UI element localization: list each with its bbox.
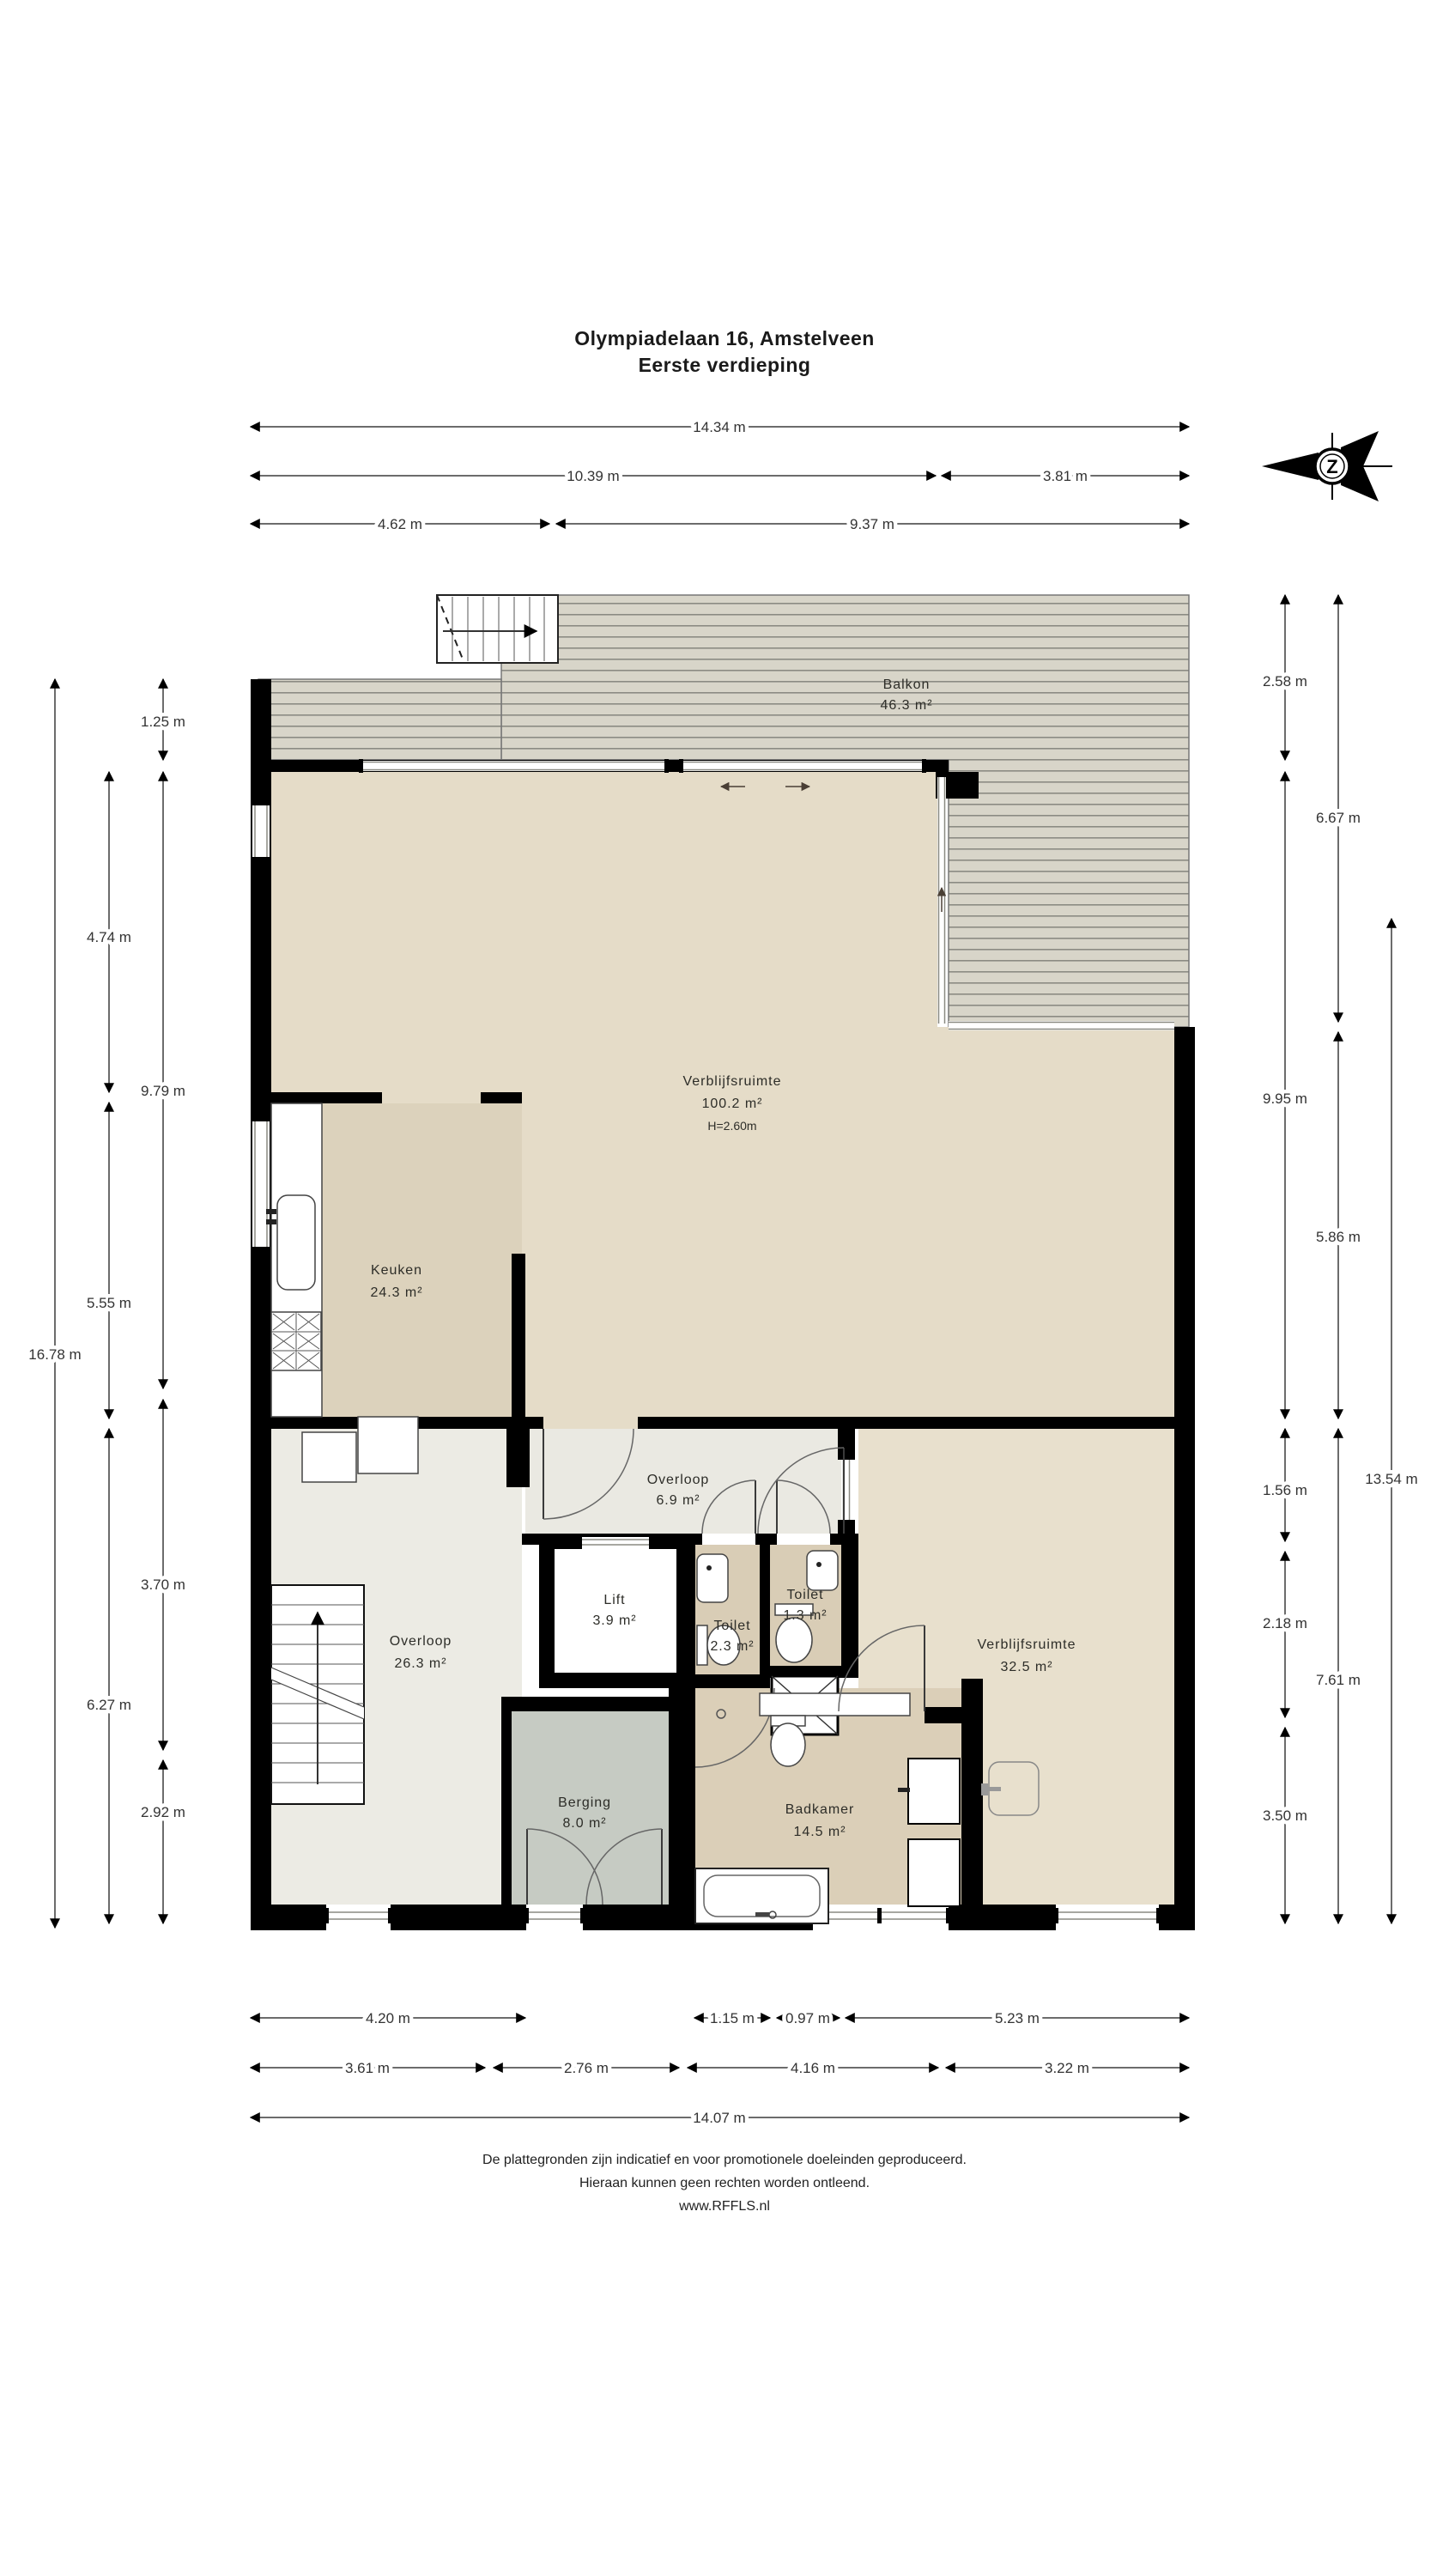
faucet-dot-icon xyxy=(706,1565,712,1571)
dim-label: 9.79 m xyxy=(141,1083,185,1099)
dim-bot-r1-1: 4.20 m xyxy=(251,2010,525,2026)
cabinet xyxy=(358,1417,418,1473)
kitchen-faucet-icon xyxy=(266,1209,276,1214)
dim-label: 5.55 m xyxy=(87,1295,131,1311)
closet-handle-icon xyxy=(898,1788,910,1792)
dim-label: 3.81 m xyxy=(1043,468,1088,484)
room-area: 6.9 m² xyxy=(656,1493,700,1508)
dim-right-mid-2: 5.86 m xyxy=(1316,1032,1361,1419)
room-area: 8.0 m² xyxy=(562,1816,606,1831)
dim-bot-r1-3: 0.97 m xyxy=(777,2010,840,2026)
disclaimer-line-1: De plattegronden zijn indicatief en voor… xyxy=(482,2153,967,2167)
dim-bot-r2-3: 4.16 m xyxy=(688,2060,938,2076)
disclaimer-line-2: Hieraan kunnen geen rechten worden ontle… xyxy=(579,2176,870,2190)
room-fills xyxy=(258,595,1189,1905)
window-left-2 xyxy=(252,1121,270,1247)
dim-label: 1.25 m xyxy=(141,714,185,730)
disclaimer: De plattegronden zijn indicatief en voor… xyxy=(482,2153,967,2214)
window-bottom-2 xyxy=(524,1908,585,1923)
window-bottom-1 xyxy=(324,1908,392,1923)
room-name: Badkamer xyxy=(785,1802,855,1817)
window-balkon-bottom xyxy=(949,1021,1174,1030)
dim-label: 4.16 m xyxy=(791,2060,835,2076)
dim-label: 0.97 m xyxy=(785,2010,830,2026)
dim-right-in-5: 3.50 m xyxy=(1263,1728,1307,1923)
room-area: 2.3 m² xyxy=(710,1639,754,1654)
room-name: Toilet xyxy=(713,1619,750,1633)
stove-icon xyxy=(271,1312,321,1370)
plan-title: Olympiadelaan 16, Amstelveen Eerste verd… xyxy=(574,327,875,376)
cabinet xyxy=(302,1432,356,1482)
kitchen-faucet-icon xyxy=(266,1219,276,1224)
dim-label: 6.27 m xyxy=(87,1697,131,1713)
dim-bot-r2-4: 3.22 m xyxy=(946,2060,1189,2076)
dim-label: 5.23 m xyxy=(995,2010,1040,2026)
room-area: 14.5 m² xyxy=(794,1825,846,1839)
dim-right-in-2: 9.95 m xyxy=(1263,772,1307,1419)
room-area: 32.5 m² xyxy=(1001,1660,1053,1674)
dim-right-in-3: 1.56 m xyxy=(1263,1429,1307,1541)
room-name: Verblijfsruimte xyxy=(683,1074,782,1089)
stairs-overloop xyxy=(271,1585,364,1804)
closet xyxy=(908,1839,960,1906)
closet xyxy=(908,1759,960,1824)
dim-label: 1.15 m xyxy=(710,2010,755,2026)
dim-bot-r2-2: 2.76 m xyxy=(494,2060,679,2076)
dim-label: 14.07 m xyxy=(693,2110,745,2126)
room-name: Berging xyxy=(558,1795,611,1810)
floorplan-canvas: Olympiadelaan 16, Amstelveen Eerste verd… xyxy=(0,0,1449,2576)
dim-label: 13.54 m xyxy=(1365,1471,1417,1487)
room-area: 100.2 m² xyxy=(702,1097,763,1111)
compass-letter: Z xyxy=(1326,456,1337,477)
dim-bot-r1-2: 1.15 m xyxy=(694,2010,770,2026)
room-name: Keuken xyxy=(371,1263,422,1278)
dim-label: 10.39 m xyxy=(567,468,619,484)
room-name: Balkon xyxy=(883,677,931,692)
title-address: Olympiadelaan 16, Amstelveen xyxy=(574,327,875,349)
window-bottom-4 xyxy=(1054,1908,1161,1923)
dim-label: 3.22 m xyxy=(1045,2060,1089,2076)
disclaimer-url: www.RFFLS.nl xyxy=(678,2199,770,2214)
bathroom-counter xyxy=(760,1693,910,1716)
dim-label: 2.18 m xyxy=(1263,1615,1307,1631)
dim-top-left: 10.39 m xyxy=(251,468,936,484)
dim-left-in-4: 2.92 m xyxy=(141,1760,185,1923)
dim-label: 5.86 m xyxy=(1316,1229,1361,1245)
dim-right-in-4: 2.18 m xyxy=(1263,1552,1307,1717)
window-bottom-3 xyxy=(811,1908,950,1923)
room-name: Verblijfsruimte xyxy=(978,1637,1076,1652)
room-area: 1.3 m² xyxy=(783,1608,827,1623)
lift-door xyxy=(582,1537,649,1547)
dim-label: 3.61 m xyxy=(345,2060,390,2076)
dim-label: 4.20 m xyxy=(366,2010,410,2026)
dim-label: 4.62 m xyxy=(378,516,422,532)
dim-left-mid-3: 6.27 m xyxy=(87,1429,131,1923)
room-area: 24.3 m² xyxy=(371,1285,423,1300)
room-name: Toilet xyxy=(786,1588,823,1602)
faucet-dot-icon xyxy=(816,1562,822,1567)
room-name: Lift xyxy=(603,1593,625,1607)
dim-bot-r2-1: 3.61 m xyxy=(251,2060,485,2076)
dim-left-mid-1: 4.74 m xyxy=(87,772,131,1092)
dim-top-total: 14.34 m xyxy=(251,419,1189,435)
toilet-sink xyxy=(807,1551,838,1590)
label-lift: Lift 3.9 m² xyxy=(592,1593,636,1628)
stairs-balkon xyxy=(437,595,558,663)
dim-label: 2.58 m xyxy=(1263,673,1307,690)
dim-label: 9.95 m xyxy=(1263,1091,1307,1107)
room-area: 26.3 m² xyxy=(395,1656,447,1671)
dim-label: 3.50 m xyxy=(1263,1807,1307,1824)
dim-label: 14.34 m xyxy=(693,419,745,435)
dim-label: 7.61 m xyxy=(1316,1672,1361,1688)
dim-top-row3-right: 9.37 m xyxy=(556,516,1189,532)
dim-label: 4.74 m xyxy=(87,929,131,945)
room-area: 3.9 m² xyxy=(592,1613,636,1628)
window-balkon-vertical xyxy=(937,777,946,1024)
dim-label: 9.37 m xyxy=(850,516,894,532)
wc-icon xyxy=(771,1716,805,1766)
bathtub-icon xyxy=(695,1868,828,1923)
room-height: H=2.60m xyxy=(707,1119,756,1133)
dim-label: 2.92 m xyxy=(141,1804,185,1820)
window-top-1 xyxy=(359,759,669,773)
dim-left-in-3: 3.70 m xyxy=(141,1400,185,1750)
dim-right-outer: 13.54 m xyxy=(1365,919,1417,1923)
dim-left-in-1: 1.25 m xyxy=(141,679,185,760)
title-floor: Eerste verdieping xyxy=(639,354,811,376)
dim-bot-r1-4: 5.23 m xyxy=(846,2010,1189,2026)
balkon-deck-left xyxy=(258,679,501,760)
dim-left-outer: 16.78 m xyxy=(28,679,81,1928)
dim-top-row3-left: 4.62 m xyxy=(251,516,549,532)
dim-label: 3.70 m xyxy=(141,1577,185,1593)
dim-label: 2.76 m xyxy=(564,2060,609,2076)
kitchen-sink xyxy=(277,1195,315,1290)
dim-label: 16.78 m xyxy=(28,1346,81,1363)
dim-top-right: 3.81 m xyxy=(942,468,1189,484)
dim-label: 1.56 m xyxy=(1263,1482,1307,1498)
dim-right-in-1: 2.58 m xyxy=(1263,595,1307,760)
window-top-2 xyxy=(679,759,926,773)
dim-right-mid-3: 7.61 m xyxy=(1316,1429,1361,1923)
dim-left-mid-2: 5.55 m xyxy=(87,1103,131,1419)
dim-right-mid-1: 6.67 m xyxy=(1316,595,1361,1022)
compass-icon: Z xyxy=(1262,431,1392,501)
room-name: Overloop xyxy=(647,1473,710,1487)
toilet-sink xyxy=(697,1554,728,1602)
dim-label: 6.67 m xyxy=(1316,810,1361,826)
floorplan-page: Olympiadelaan 16, Amstelveen Eerste verd… xyxy=(0,0,1449,2576)
dim-bot-total: 14.07 m xyxy=(251,2110,1189,2126)
room-area: 46.3 m² xyxy=(881,698,933,713)
room-name: Overloop xyxy=(390,1634,452,1649)
window-left-1 xyxy=(252,805,270,857)
dim-left-in-2: 9.79 m xyxy=(141,772,185,1388)
